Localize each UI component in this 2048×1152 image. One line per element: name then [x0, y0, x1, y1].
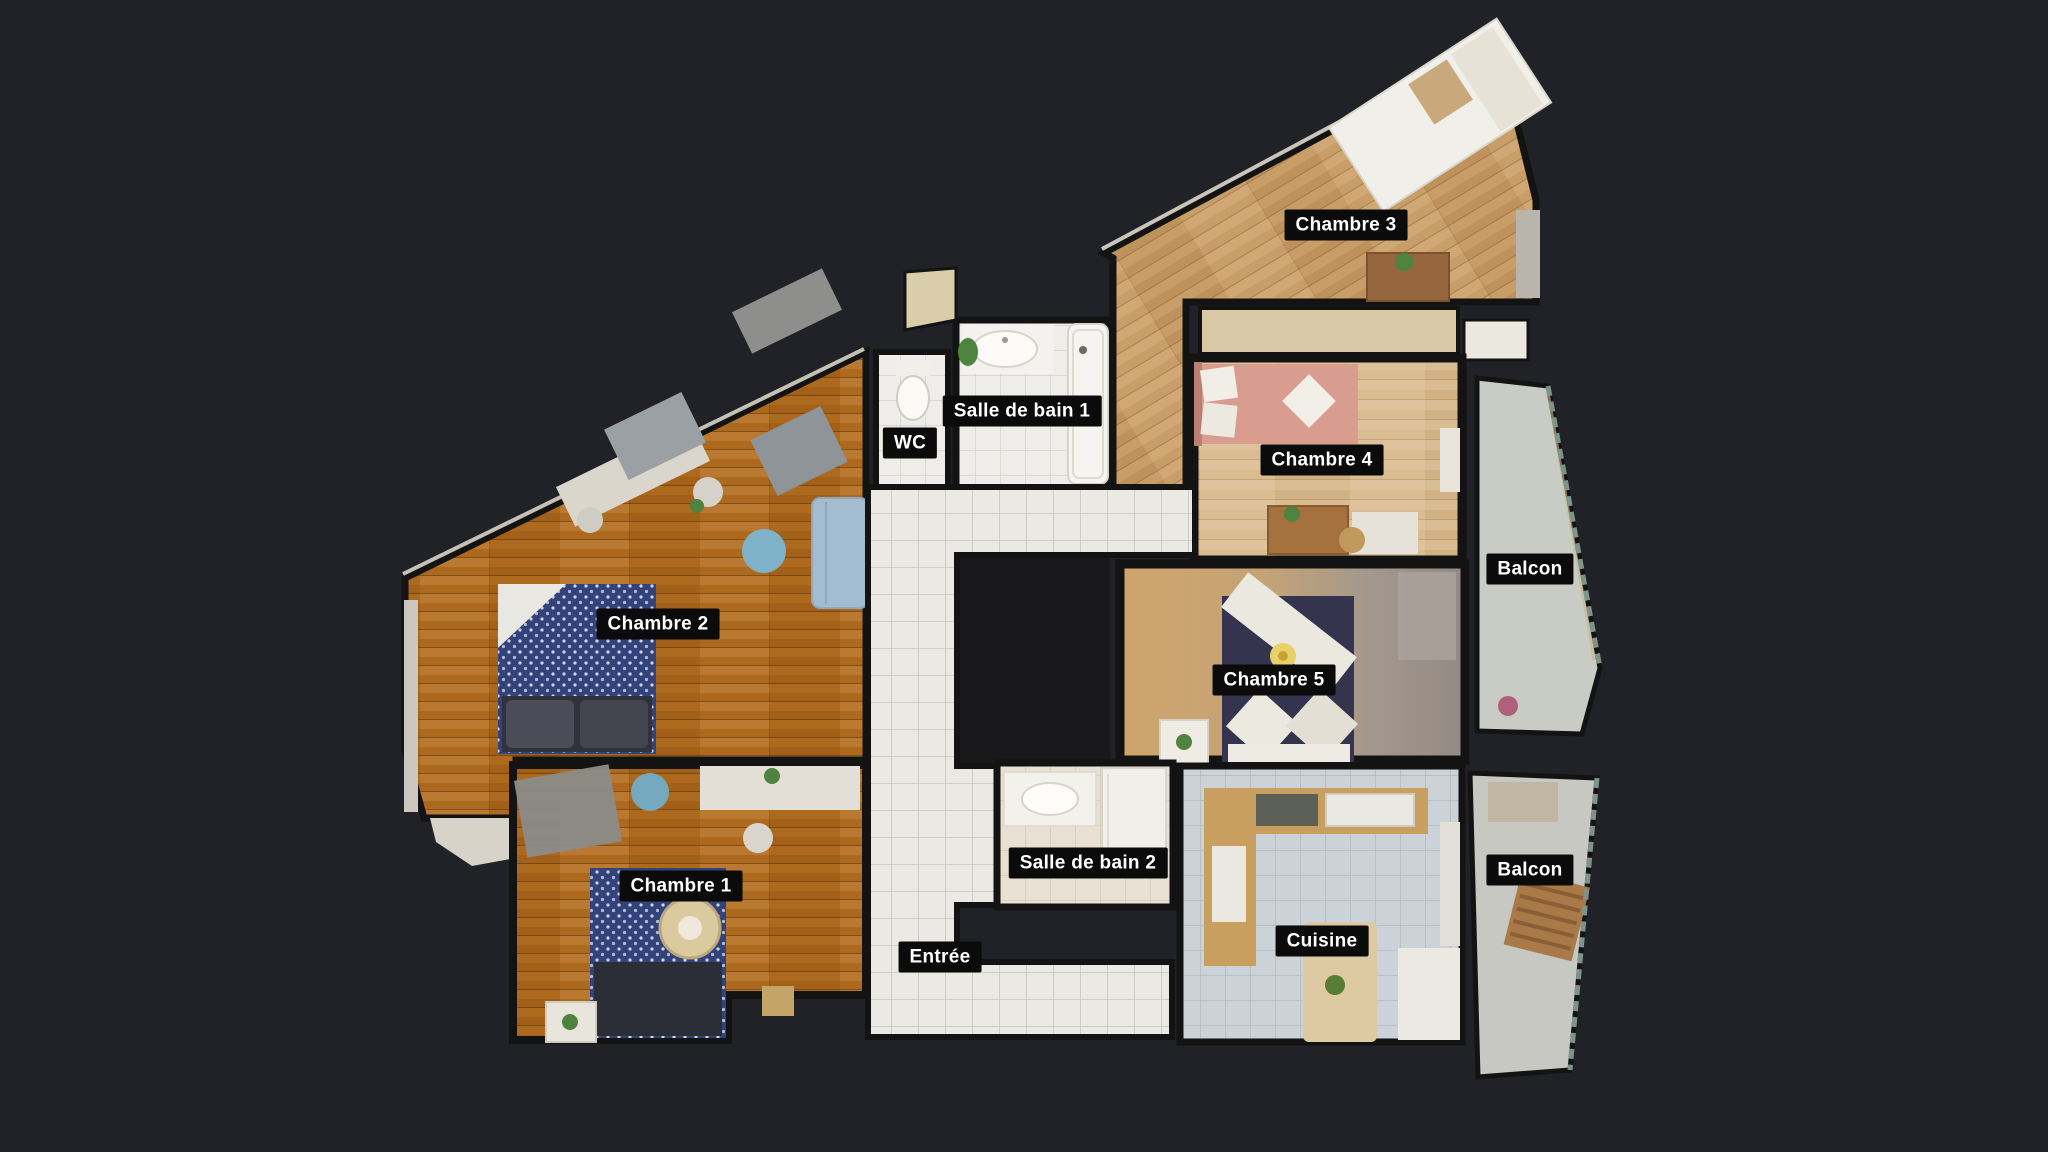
wc-door [905, 268, 956, 330]
room-label-salle-de-bain-1: Salle de bain 1 [943, 396, 1102, 427]
tub-drain [1079, 346, 1087, 354]
room-label-chambre-2: Chambre 2 [597, 609, 720, 640]
chambre-1-desk [700, 766, 860, 810]
room-label-salle-de-bain-2: Salle de bain 2 [1009, 848, 1168, 879]
chambre-4-bed [1194, 362, 1358, 446]
round-table-top [678, 916, 702, 940]
room-label-chambre-3: Chambre 3 [1285, 210, 1408, 241]
room-salle-de-bain-2[interactable] [997, 763, 1173, 907]
floorplan-graphic [0, 0, 2048, 1152]
room-label-chambre-4: Chambre 4 [1261, 445, 1384, 476]
room-balcon-sud[interactable] [1470, 773, 1597, 1077]
chambre-1-rug [514, 764, 622, 857]
balcony-door [1440, 428, 1460, 492]
kitchen-appliance-door [1212, 846, 1246, 922]
closet-band [1200, 308, 1458, 354]
plant [958, 338, 978, 366]
kitchen-stove [1252, 794, 1318, 826]
gray-sofa-outside [732, 268, 842, 353]
plant [1395, 253, 1413, 271]
chambre-3-side-cabinet [1516, 210, 1540, 298]
chambre-2-bay-corner [430, 818, 516, 866]
room-label-balcon-nord: Balcon [1486, 554, 1573, 585]
room-label-chambre-1: Chambre 1 [620, 871, 743, 902]
unscanned-void [960, 558, 1110, 768]
floorplan-canvas: Chambre 3 Salle de bain 1 WC Chambre 4 B… [0, 0, 2048, 1152]
room-cuisine[interactable] [1180, 766, 1462, 1042]
white-closet [1464, 320, 1528, 360]
room-label-cuisine: Cuisine [1276, 926, 1369, 957]
chambre-5-wardrobe [1398, 572, 1456, 660]
plant [562, 1014, 578, 1030]
bathroom-2-sink [1022, 783, 1078, 815]
room-wc[interactable] [876, 352, 948, 488]
room-label-wc: WC [883, 428, 937, 459]
balcony-mat [1488, 782, 1558, 822]
chambre-2-round-rug [742, 529, 786, 573]
room-label-entree: Entrée [899, 942, 982, 973]
kitchen-right-cabinet [1440, 822, 1460, 946]
room-label-chambre-5: Chambre 5 [1213, 665, 1336, 696]
chambre-4-chair [1339, 527, 1365, 553]
toilet-tank [896, 360, 930, 376]
chambre-1-chair [743, 823, 773, 853]
bathroom-1-sink [973, 331, 1037, 367]
toilet [897, 376, 929, 420]
plant [1325, 975, 1345, 995]
shower [1102, 768, 1166, 858]
balcony-flower-pot [1498, 696, 1518, 716]
chambre-2-chair-2 [577, 507, 603, 533]
chambre-1-stool [762, 986, 794, 1016]
sink-drain [1002, 337, 1008, 343]
plant [1176, 734, 1192, 750]
chambre-4-desk [1268, 506, 1348, 554]
fridge [1398, 948, 1460, 1040]
plant [1284, 506, 1300, 522]
chambre-2-window-sill [404, 600, 418, 812]
room-chambre-1[interactable] [513, 764, 866, 1042]
chambre-2-sofa [812, 498, 868, 608]
kitchen-sink [1326, 794, 1414, 826]
room-label-balcon-sud: Balcon [1486, 855, 1573, 886]
plant [764, 768, 780, 784]
chambre-1-pouf [631, 773, 669, 811]
plant [690, 499, 704, 513]
